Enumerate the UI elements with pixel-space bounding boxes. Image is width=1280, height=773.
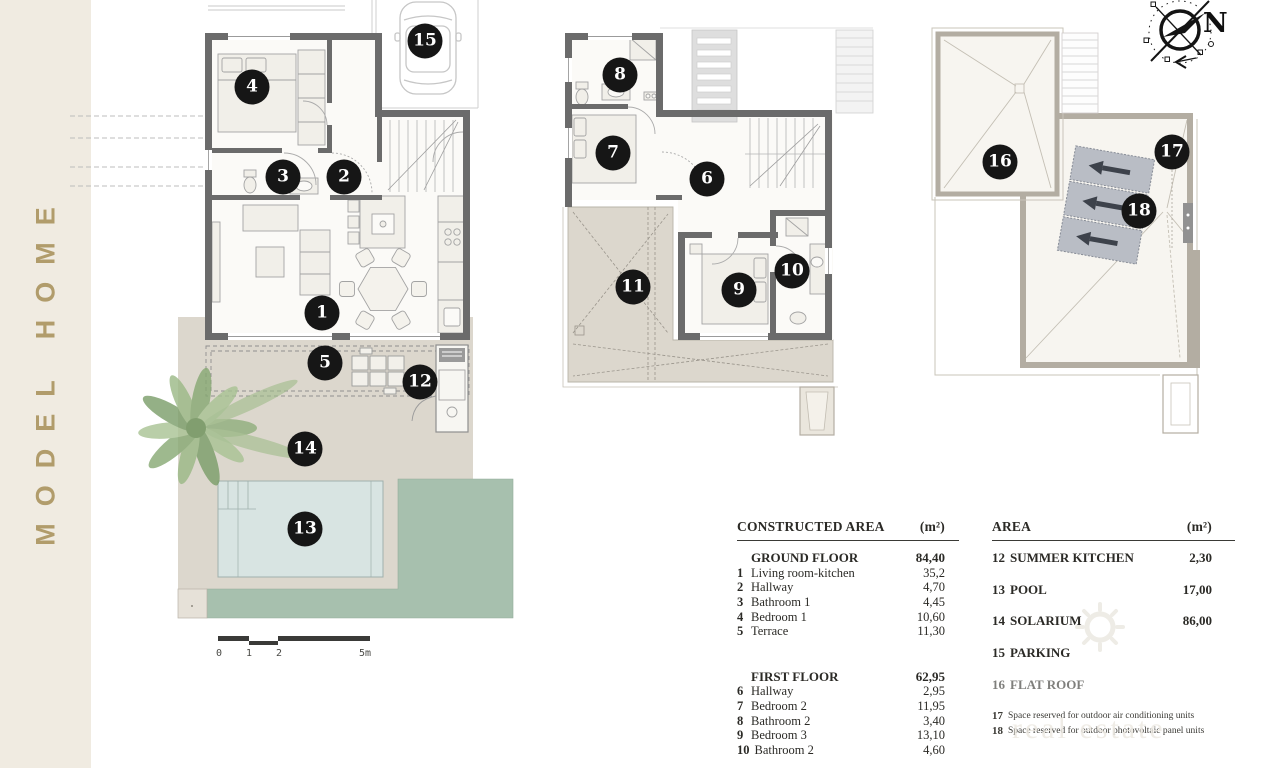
table-row: 9 Bedroom 3 13,10 xyxy=(737,728,945,743)
room-marker: 7 xyxy=(596,136,631,171)
scale-label: 5m xyxy=(359,648,371,659)
north-label: N xyxy=(1203,8,1228,39)
room-marker: 10 xyxy=(775,254,810,289)
room-marker: 6 xyxy=(690,162,725,197)
room-marker: 9 xyxy=(722,273,757,308)
room-marker: 1 xyxy=(305,296,340,331)
room-marker: 15 xyxy=(408,24,443,59)
table-row: FIRST FLOOR 62,95 xyxy=(737,670,945,685)
table-row: 12 SUMMER KITCHEN 2,30 xyxy=(992,551,1212,566)
table-row: 10 Bathroom 2 4,60 xyxy=(737,743,945,758)
roof-plan xyxy=(932,28,1200,433)
roof-vent xyxy=(1183,203,1193,243)
constructed-area-table: CONSTRUCTED AREA (m²) GROUND FLOOR 84,40… xyxy=(737,519,959,757)
table-unit: (m²) xyxy=(920,519,945,535)
scale-label: 0 xyxy=(216,648,222,659)
room-marker: 4 xyxy=(235,70,270,105)
scale-label: 1 xyxy=(246,648,252,659)
table-row: 16 FLAT ROOF xyxy=(992,678,1212,693)
table-rule xyxy=(737,540,959,541)
room-marker: 11 xyxy=(616,270,651,305)
room-marker: 13 xyxy=(288,512,323,547)
room-marker: 17 xyxy=(1155,135,1190,170)
table-row: 13 POOL 17,00 xyxy=(992,583,1212,598)
table-row: 3 Bathroom 1 4,45 xyxy=(737,595,945,610)
table-title: AREA xyxy=(992,519,1031,535)
table-row: 18 Space reserved for outdoor photovolta… xyxy=(992,724,1212,739)
table-row: 1 Living room-kitchen 35,2 xyxy=(737,566,945,581)
room-marker: 16 xyxy=(983,145,1018,180)
chimney xyxy=(800,387,834,435)
scale-segment xyxy=(249,641,278,646)
table-row: 8 Bathroom 2 3,40 xyxy=(737,714,945,729)
room-marker: 14 xyxy=(288,432,323,467)
table-title: CONSTRUCTED AREA xyxy=(737,519,885,535)
cabinet xyxy=(243,205,298,231)
room-marker: 12 xyxy=(403,365,438,400)
wardrobe xyxy=(298,50,325,145)
sofa xyxy=(300,230,330,295)
pergola-slats xyxy=(660,28,873,122)
tv-unit xyxy=(212,222,220,302)
room-marker: 8 xyxy=(603,58,638,93)
table-rule xyxy=(992,540,1235,541)
room-marker: 5 xyxy=(308,346,343,381)
table-row: 17 Space reserved for outdoor air condit… xyxy=(992,709,1212,724)
scale-segment xyxy=(278,636,370,641)
table-row: 5 Terrace 11,30 xyxy=(737,624,945,639)
coffee-table xyxy=(256,247,284,277)
table-unit: (m²) xyxy=(1187,519,1212,535)
roof-chimney xyxy=(1163,375,1198,433)
scale-label: 2 xyxy=(276,648,282,659)
table-row: 14 SOLARIUM 86,00 xyxy=(992,614,1212,629)
table-row: 7 Bedroom 2 11,95 xyxy=(737,699,945,714)
table-row xyxy=(737,639,945,670)
table-row: 4 Bedroom 1 10,60 xyxy=(737,610,945,625)
table-row: 15 PARKING xyxy=(992,646,1212,661)
room-marker: 18 xyxy=(1122,194,1157,229)
scale-bar: 0 1 2 5m xyxy=(218,636,370,658)
table-row: 2 Hallway 4,70 xyxy=(737,580,945,595)
table-row: 6 Hallway 2,95 xyxy=(737,684,945,699)
room-marker: 2 xyxy=(327,160,362,195)
toilet xyxy=(244,170,256,177)
floor-plan-sheet: { "sidebar": { "title": "MODEL HOME", "b… xyxy=(0,0,1280,768)
table-row: GROUND FLOOR 84,40 xyxy=(737,551,945,566)
scale-segment xyxy=(218,636,249,641)
room-marker: 3 xyxy=(266,160,301,195)
roof-stair-slats xyxy=(1062,33,1098,113)
area-table: AREA (m²) 12 SUMMER KITCHEN 2,30 13 POOL… xyxy=(992,519,1235,739)
